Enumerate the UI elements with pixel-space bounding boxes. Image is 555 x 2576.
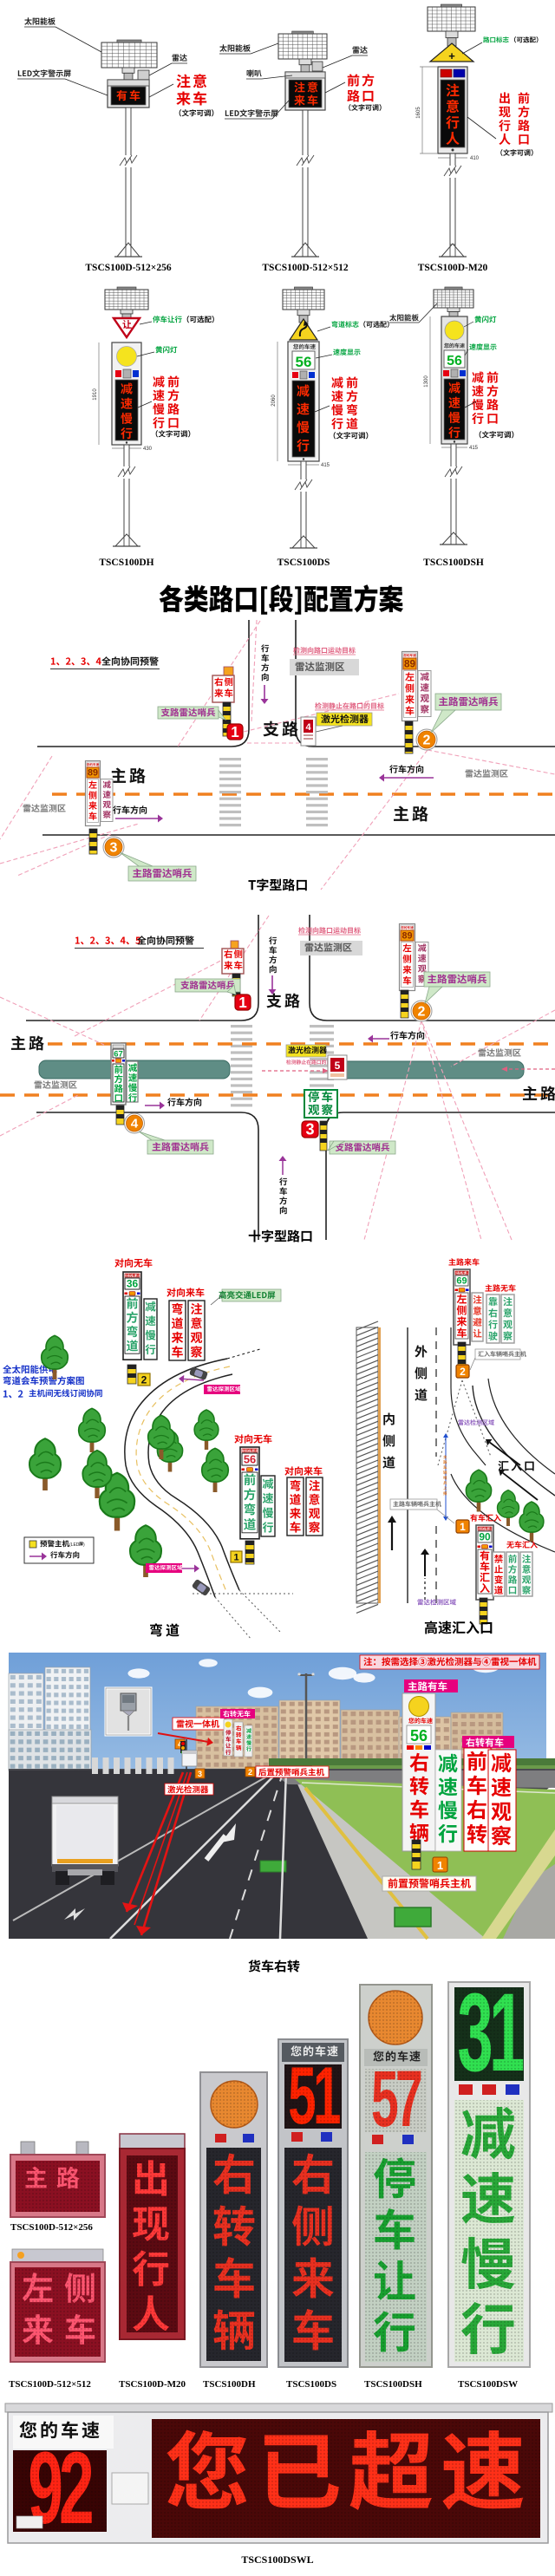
- svg-text:2: 2: [460, 1366, 466, 1378]
- svg-text:TSCS100D-512×256: TSCS100D-512×256: [85, 263, 171, 273]
- svg-text:TSCS100D-M20: TSCS100D-M20: [418, 263, 488, 273]
- svg-text:56: 56: [447, 354, 462, 368]
- svg-text:TSCS100D-512×256: TSCS100D-512×256: [10, 2222, 93, 2233]
- svg-text:1605: 1605: [416, 107, 421, 119]
- svg-text:1910: 1910: [93, 388, 98, 401]
- svg-text:TSCS100DH: TSCS100DH: [99, 558, 153, 568]
- svg-text:3: 3: [305, 1121, 314, 1138]
- svg-text:TSCS100D-512×512: TSCS100D-512×512: [262, 263, 348, 273]
- svg-text:67: 67: [114, 1050, 123, 1060]
- svg-text:415: 415: [321, 463, 330, 468]
- svg-text:TSCS100D-512×512: TSCS100D-512×512: [9, 2379, 91, 2390]
- svg-text:4: 4: [131, 1117, 139, 1131]
- svg-text:1: 1: [233, 1553, 238, 1563]
- svg-text:TSCS100DSWL: TSCS100DSWL: [241, 2553, 313, 2566]
- svg-text:2: 2: [141, 1374, 147, 1386]
- svg-text:410: 410: [470, 156, 480, 161]
- svg-text:2: 2: [248, 1768, 252, 1777]
- svg-text:1300: 1300: [424, 375, 429, 388]
- svg-text:TSCS100DH: TSCS100DH: [203, 2379, 256, 2390]
- svg-text:3: 3: [198, 1770, 202, 1778]
- svg-text:1: 1: [460, 1521, 466, 1533]
- svg-text:TSCS100DS: TSCS100DS: [277, 558, 330, 568]
- svg-text:69: 69: [456, 1276, 467, 1287]
- svg-text:89: 89: [404, 659, 416, 670]
- svg-text:89: 89: [402, 931, 412, 942]
- svg-text:90: 90: [479, 1531, 491, 1543]
- svg-text:1: 1: [437, 1859, 443, 1872]
- svg-text:430: 430: [143, 447, 153, 452]
- svg-text:TSCS100D-M20: TSCS100D-M20: [119, 2379, 186, 2390]
- svg-text:56: 56: [296, 354, 312, 370]
- svg-text:TSCS100DS: TSCS100DS: [286, 2379, 336, 2390]
- svg-text:2: 2: [418, 1005, 426, 1020]
- svg-text:+: +: [448, 49, 455, 62]
- svg-text:89: 89: [88, 768, 98, 779]
- svg-text:36: 36: [127, 1278, 139, 1290]
- svg-text:2060: 2060: [271, 395, 277, 407]
- svg-text:415: 415: [469, 446, 479, 451]
- svg-text:(LED: (LED: [69, 1542, 80, 1548]
- svg-text:4: 4: [305, 722, 311, 733]
- svg-text:2: 2: [423, 734, 431, 748]
- svg-text:TSCS100DSH: TSCS100DSH: [364, 2379, 422, 2390]
- svg-text:1: 1: [238, 995, 247, 1011]
- svg-text:5: 5: [335, 1060, 341, 1072]
- svg-text:56: 56: [410, 1727, 428, 1745]
- svg-text:TSCS100DSH: TSCS100DSH: [423, 558, 484, 568]
- svg-text:1: 1: [231, 724, 239, 740]
- svg-text:3: 3: [110, 841, 118, 856]
- svg-text:56: 56: [244, 1453, 256, 1466]
- svg-text:TSCS100DSW: TSCS100DSW: [458, 2379, 518, 2390]
